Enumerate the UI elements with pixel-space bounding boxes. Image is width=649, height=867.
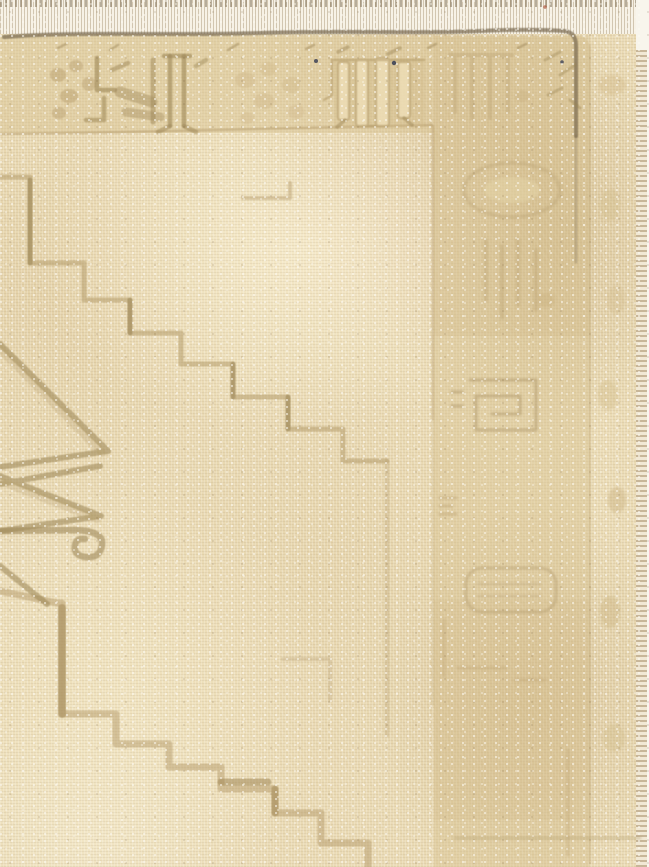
scroll-hook-curl: [0, 530, 102, 557]
serrated-diagonal-2: [0, 476, 101, 516]
medallion-serrated-edge: [0, 344, 108, 604]
rug-photo: [0, 0, 649, 867]
rug-artwork: [0, 0, 649, 867]
step-fragment-lower: [283, 659, 330, 700]
photo-corner-white: [636, 0, 649, 50]
ghost-barred-motif: [324, 47, 424, 128]
lower-staircase-line: [0, 591, 368, 867]
field-elements: [0, 177, 387, 867]
outer-guard-leaves: [598, 75, 626, 752]
step-fragment-upper: [243, 183, 290, 198]
staircase-dark-segments: [30, 180, 288, 429]
